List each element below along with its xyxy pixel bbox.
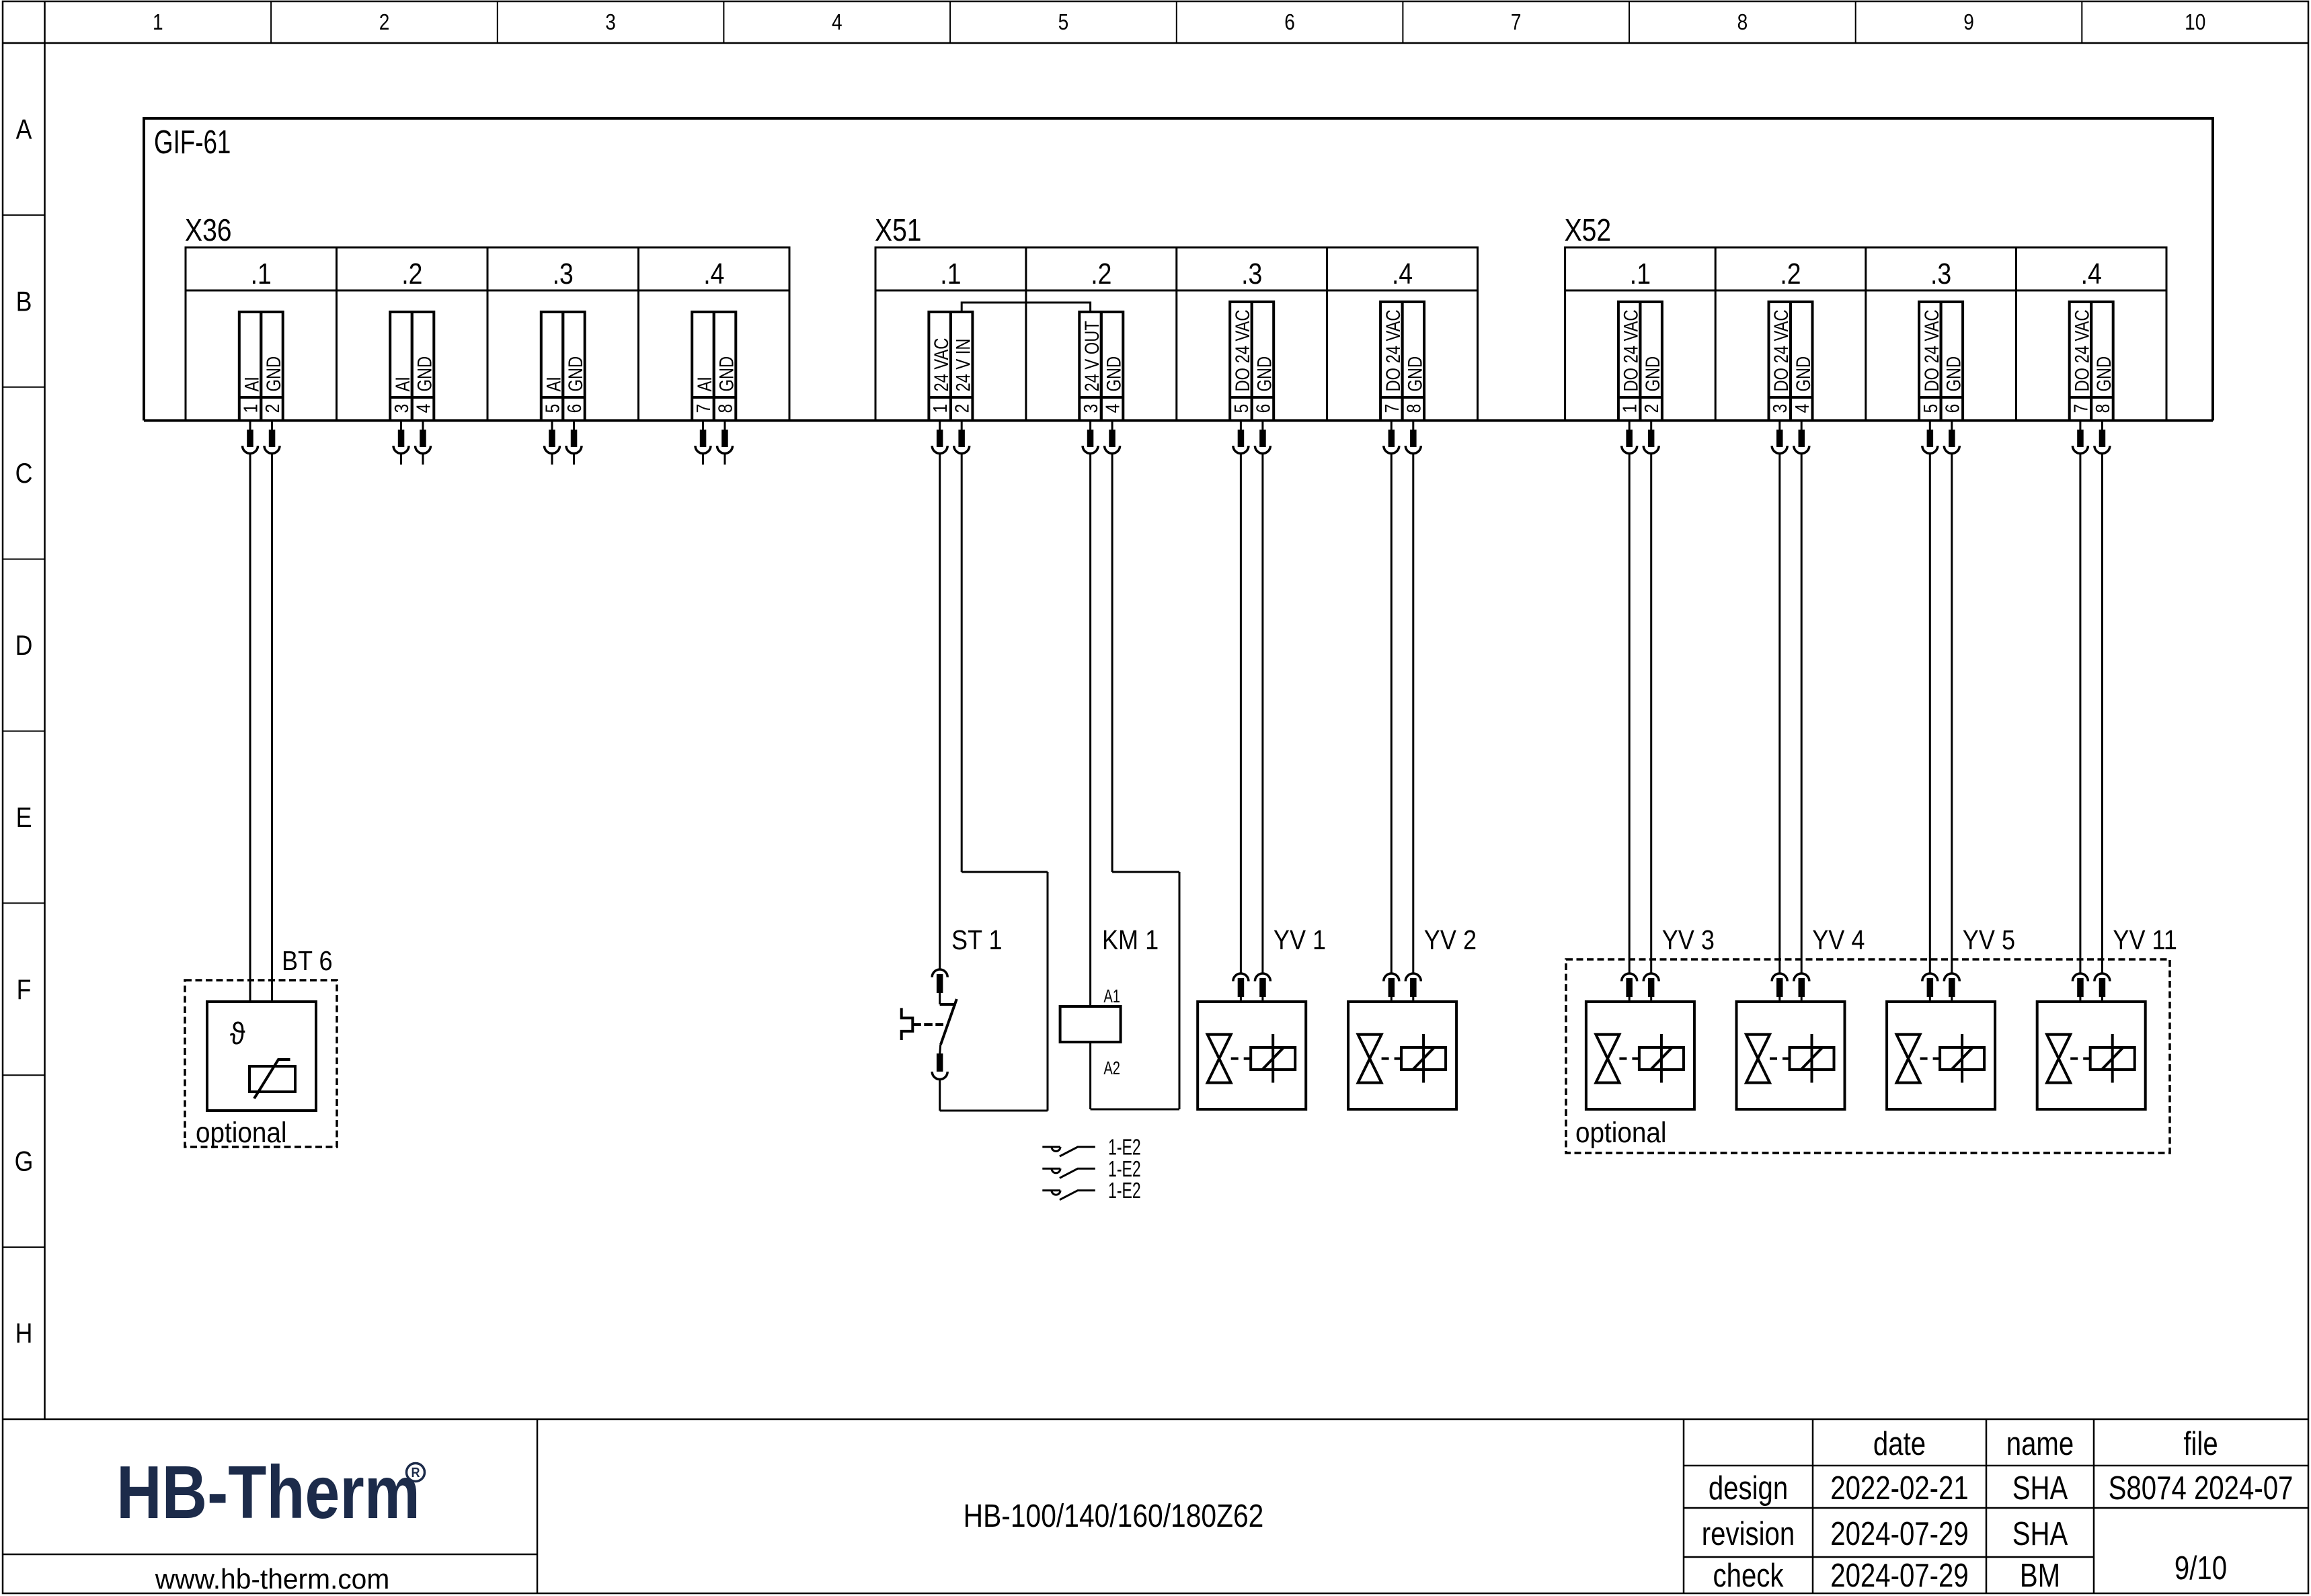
svg-text:7: 7 <box>693 404 714 413</box>
svg-text:1-E2: 1-E2 <box>1108 1179 1141 1203</box>
svg-text:.1: .1 <box>251 257 272 290</box>
svg-text:8: 8 <box>2092 404 2113 413</box>
svg-text:7: 7 <box>1381 404 1403 413</box>
svg-text:24 V OUT: 24 V OUT <box>1081 321 1103 391</box>
svg-text:GND: GND <box>414 356 436 392</box>
svg-text:1: 1 <box>1619 404 1641 413</box>
svg-text:.3: .3 <box>553 257 574 290</box>
svg-text:7: 7 <box>1511 10 1522 35</box>
svg-text:GND: GND <box>262 356 284 392</box>
svg-text:3: 3 <box>1769 404 1791 413</box>
svg-text:YV 1: YV 1 <box>1274 925 1326 956</box>
svg-text:design: design <box>1709 1470 1788 1507</box>
svg-text:9/10: 9/10 <box>2175 1550 2227 1587</box>
svg-text:DO 24 VAC: DO 24 VAC <box>1620 310 1642 392</box>
svg-text:2022-02-21: 2022-02-21 <box>1830 1470 1968 1507</box>
svg-text:8: 8 <box>715 404 736 413</box>
svg-text:6: 6 <box>1253 404 1274 413</box>
svg-text:GIF-61: GIF-61 <box>154 124 231 161</box>
svg-text:YV 5: YV 5 <box>1963 925 2015 956</box>
svg-text:3: 3 <box>391 404 412 413</box>
svg-text:KM 1: KM 1 <box>1102 925 1159 956</box>
svg-text:name: name <box>2006 1425 2074 1462</box>
svg-text:.2: .2 <box>401 257 422 290</box>
svg-text:4: 4 <box>413 404 434 413</box>
svg-text:DO 24 VAC: DO 24 VAC <box>2071 310 2093 392</box>
svg-text:date: date <box>1873 1425 1926 1462</box>
svg-text:.2: .2 <box>1780 257 1801 290</box>
svg-text:1: 1 <box>929 404 951 413</box>
svg-text:ST 1: ST 1 <box>951 925 1003 956</box>
svg-text:SHA: SHA <box>2012 1515 2068 1552</box>
svg-text:AI: AI <box>543 376 565 391</box>
svg-text:YV 11: YV 11 <box>2113 925 2177 956</box>
svg-text:8: 8 <box>1737 10 1748 35</box>
svg-text:4: 4 <box>1102 404 1124 413</box>
svg-text:2024-07-29: 2024-07-29 <box>1830 1557 1968 1594</box>
svg-text:.4: .4 <box>703 257 724 290</box>
svg-text:GND: GND <box>1253 356 1276 392</box>
svg-text:6: 6 <box>563 404 585 413</box>
svg-text:DO 24 VAC: DO 24 VAC <box>1382 310 1404 392</box>
svg-text:6: 6 <box>1941 404 1963 413</box>
svg-text:.3: .3 <box>1241 257 1262 290</box>
svg-text:revision: revision <box>1702 1515 1795 1552</box>
svg-text:SHA: SHA <box>2012 1470 2068 1507</box>
svg-text:YV 2: YV 2 <box>1424 925 1477 956</box>
svg-text:GND: GND <box>715 356 738 392</box>
svg-text:file: file <box>2183 1425 2218 1462</box>
svg-text:YV 4: YV 4 <box>1812 925 1865 956</box>
svg-text:check: check <box>1713 1557 1784 1594</box>
svg-text:X36: X36 <box>185 213 232 248</box>
svg-text:.4: .4 <box>1392 257 1413 290</box>
svg-text:E: E <box>16 802 32 833</box>
svg-text:HB-100/140/160/180Z62: HB-100/140/160/180Z62 <box>964 1499 1264 1534</box>
svg-text:4: 4 <box>832 10 843 35</box>
svg-text:GND: GND <box>1792 356 1814 392</box>
svg-text:D: D <box>15 630 33 661</box>
svg-text:AI: AI <box>241 376 263 391</box>
svg-text:2: 2 <box>262 404 283 413</box>
svg-text:optional: optional <box>196 1116 287 1148</box>
svg-text:DO 24 VAC: DO 24 VAC <box>1920 310 1943 392</box>
svg-text:AI: AI <box>693 376 715 391</box>
svg-text:.1: .1 <box>1630 257 1651 290</box>
svg-text:3: 3 <box>605 10 616 35</box>
svg-text:A2: A2 <box>1103 1058 1120 1079</box>
svg-text:2: 2 <box>379 10 390 35</box>
svg-text:.2: .2 <box>1091 257 1111 290</box>
svg-text:ϑ: ϑ <box>230 1016 245 1051</box>
svg-text:DO 24 VAC: DO 24 VAC <box>1231 310 1253 392</box>
svg-text:3: 3 <box>1080 404 1101 413</box>
svg-text:24 V IN: 24 V IN <box>952 339 974 392</box>
svg-text:GND: GND <box>1642 356 1664 392</box>
svg-text:9: 9 <box>1963 10 1974 35</box>
svg-text:8: 8 <box>1403 404 1424 413</box>
svg-text:4: 4 <box>1791 404 1813 413</box>
svg-text:GND: GND <box>1943 356 1965 392</box>
svg-text:10: 10 <box>2185 10 2205 35</box>
svg-text:DO 24 VAC: DO 24 VAC <box>1770 310 1793 392</box>
svg-text:BT 6: BT 6 <box>282 946 333 977</box>
svg-text:24 VAC: 24 VAC <box>931 338 953 392</box>
svg-text:C: C <box>15 458 33 489</box>
svg-text:2024-07-29: 2024-07-29 <box>1830 1515 1968 1552</box>
svg-text:H: H <box>15 1318 33 1349</box>
svg-text:X52: X52 <box>1565 213 1612 248</box>
svg-text:optional: optional <box>1575 1116 1667 1148</box>
svg-text:5: 5 <box>1920 404 1941 413</box>
svg-text:AI: AI <box>391 376 414 391</box>
svg-text:A: A <box>16 114 32 145</box>
svg-text:.3: .3 <box>1930 257 1951 290</box>
svg-text:X51: X51 <box>875 213 922 248</box>
svg-text:GND: GND <box>1103 356 1125 392</box>
svg-text:2: 2 <box>951 404 973 413</box>
svg-text:BM: BM <box>2020 1557 2060 1594</box>
svg-text:1: 1 <box>153 10 163 35</box>
svg-text:7: 7 <box>2070 404 2092 413</box>
svg-text:G: G <box>15 1146 34 1177</box>
svg-text:5: 5 <box>542 404 563 413</box>
svg-text:5: 5 <box>1230 404 1252 413</box>
svg-text:F: F <box>17 974 32 1005</box>
svg-text:B: B <box>16 286 32 317</box>
svg-text:1: 1 <box>240 404 262 413</box>
svg-text:5: 5 <box>1058 10 1069 35</box>
svg-text:GND: GND <box>564 356 586 392</box>
svg-text:6: 6 <box>1284 10 1295 35</box>
svg-text:YV 3: YV 3 <box>1662 925 1715 956</box>
svg-text:R: R <box>412 1466 420 1480</box>
svg-text:HB-Therm: HB-Therm <box>116 1450 420 1533</box>
svg-text:S8074 2024-07: S8074 2024-07 <box>2109 1470 2294 1507</box>
svg-text:A1: A1 <box>1103 986 1120 1007</box>
svg-text:2: 2 <box>1641 404 1662 413</box>
svg-text:GND: GND <box>2092 356 2115 392</box>
svg-text:.1: .1 <box>940 257 961 290</box>
svg-text:.4: .4 <box>2081 257 2102 290</box>
svg-text:GND: GND <box>1404 356 1426 392</box>
svg-text:www.hb-therm.com: www.hb-therm.com <box>155 1563 389 1595</box>
